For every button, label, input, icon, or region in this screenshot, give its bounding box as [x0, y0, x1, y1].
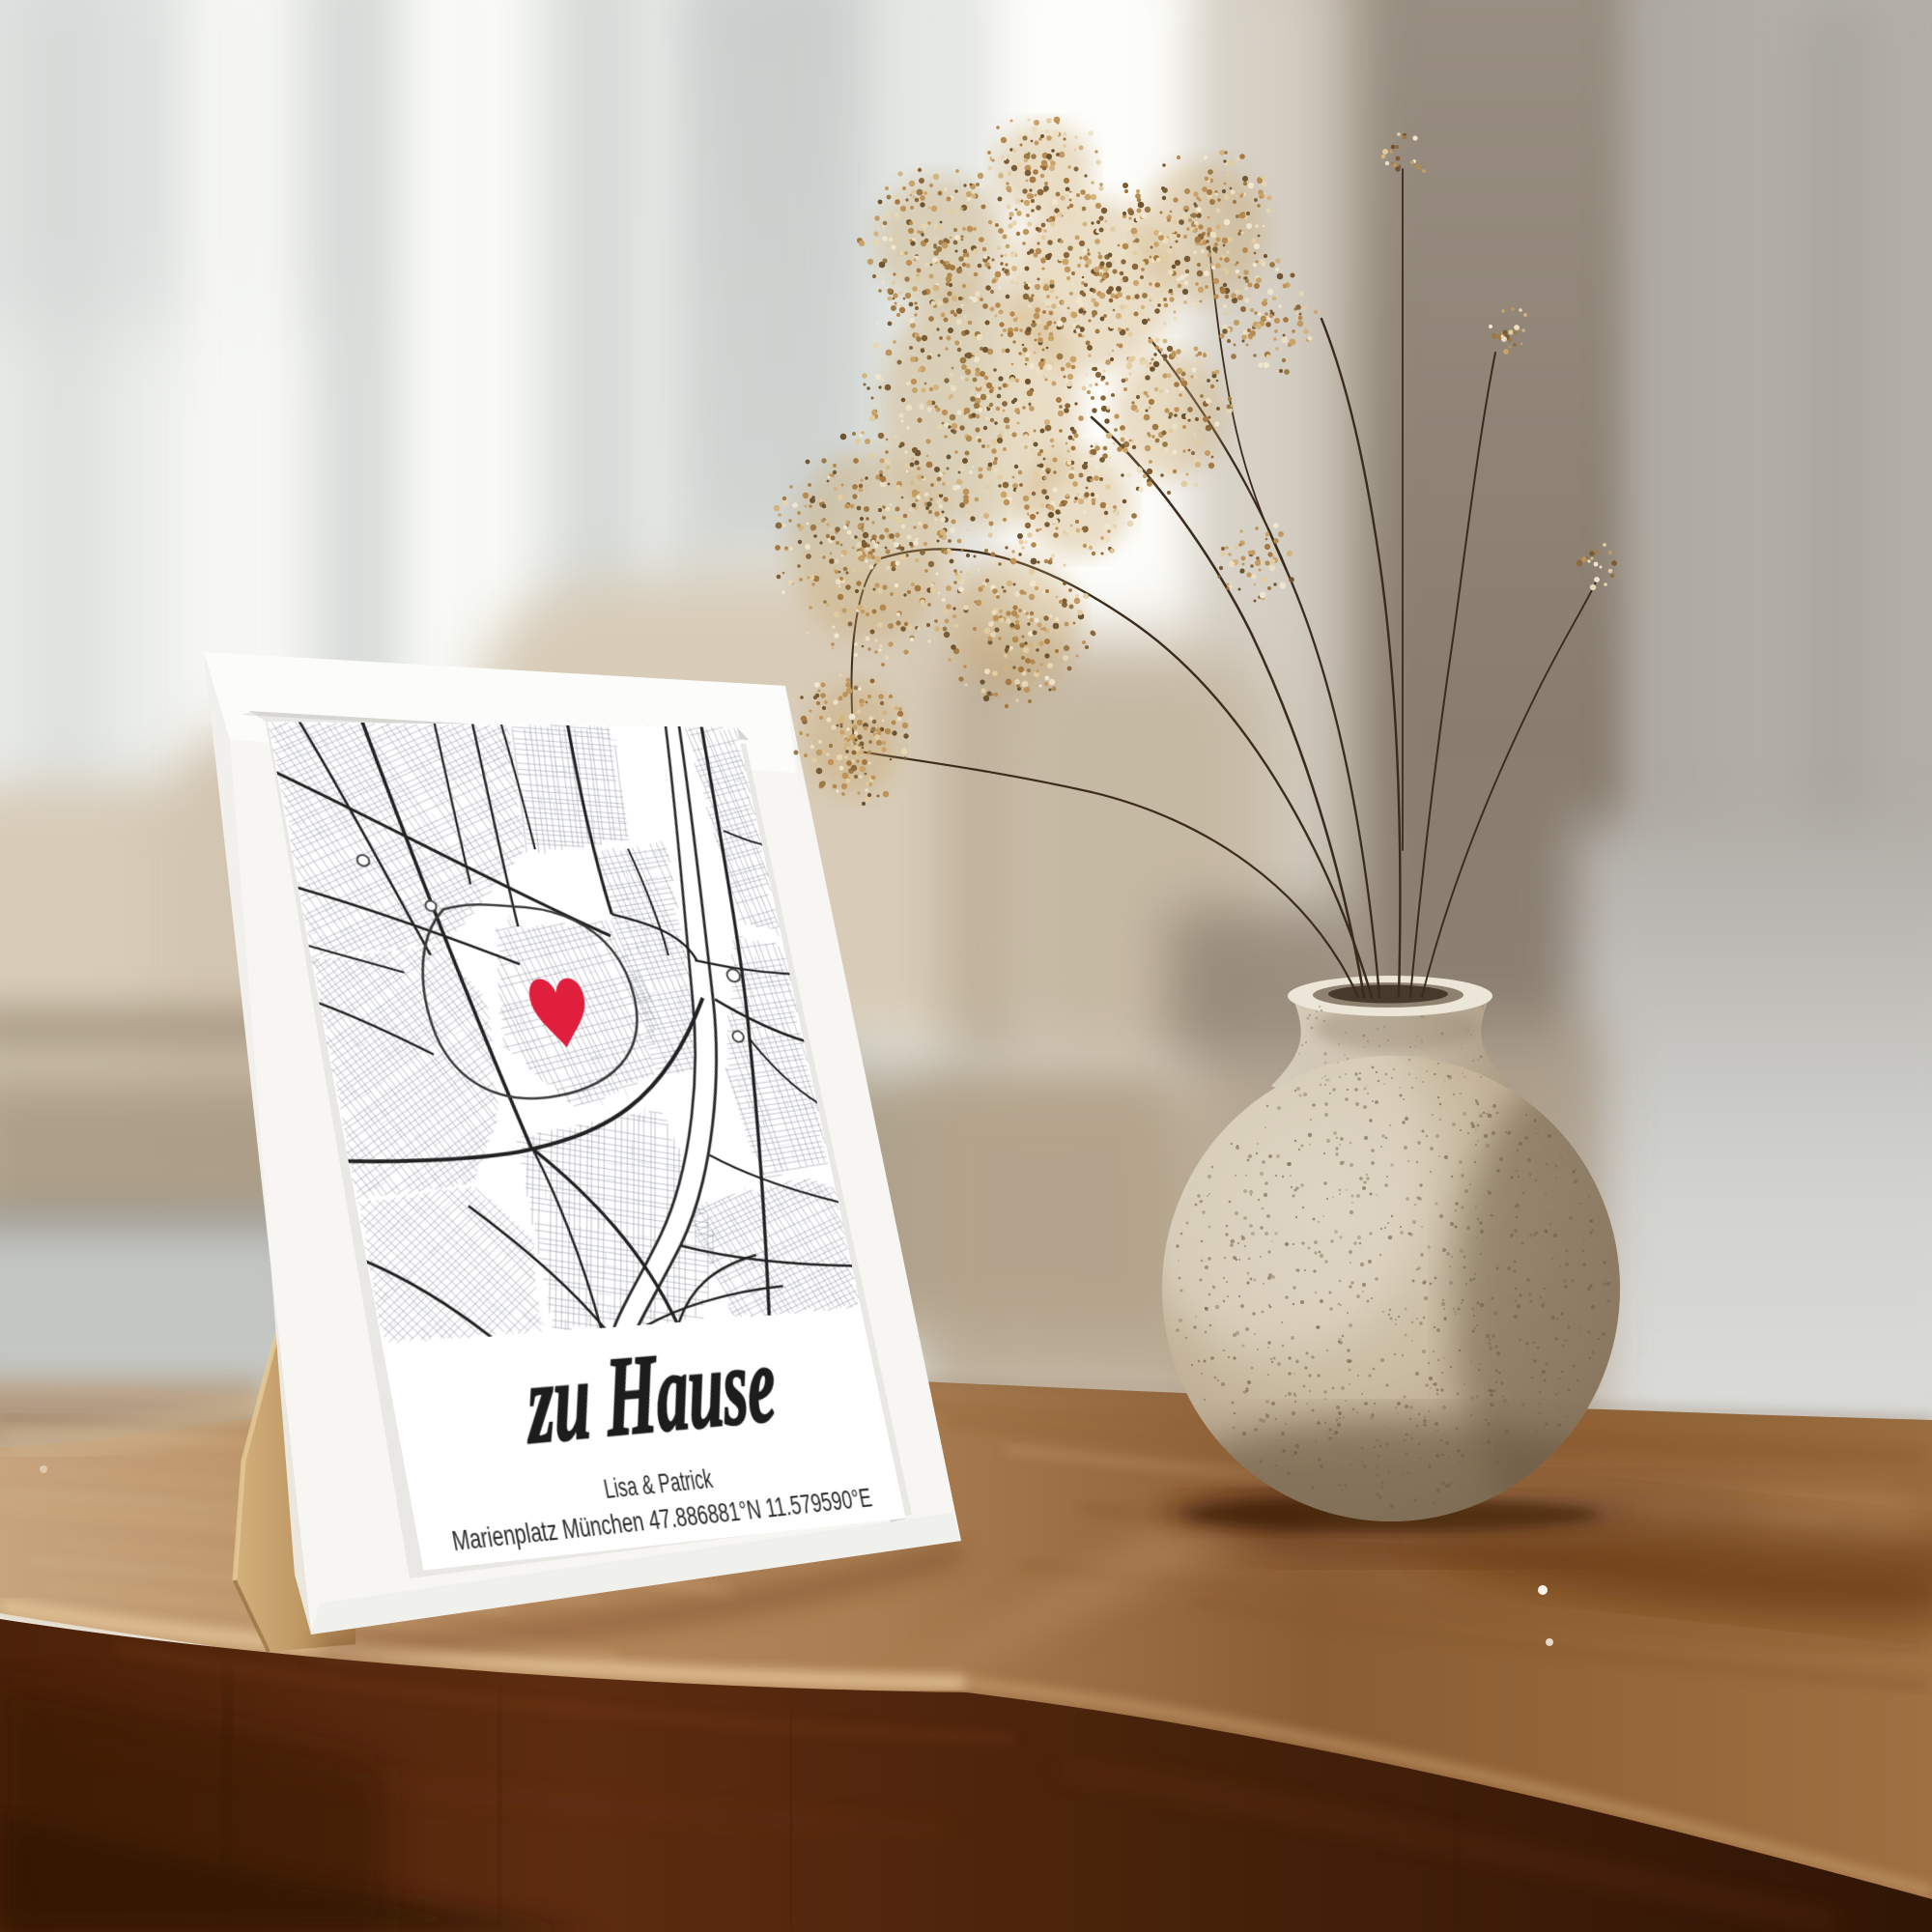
svg-text:zu Hause: zu Hause	[523, 1322, 779, 1468]
